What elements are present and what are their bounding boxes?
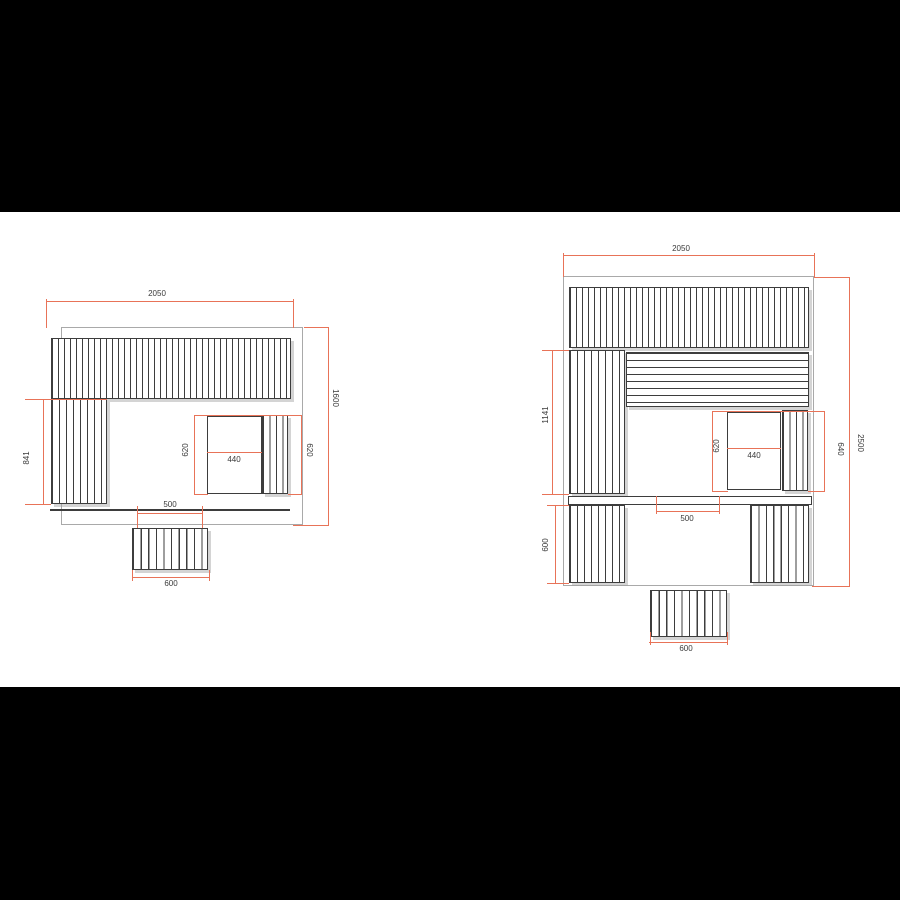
- left-dim-step-inner-tick-right: [202, 506, 203, 528]
- right-lounger-bench: [626, 352, 809, 407]
- right-dim-step-tick-left: [650, 632, 651, 645]
- right-dim-step-label: 600: [679, 645, 692, 653]
- left-dim-bench-ext-top: [25, 399, 107, 400]
- right-dim-heater-width-line: [727, 448, 781, 449]
- right-dim-step-inner-label: 500: [680, 515, 693, 523]
- right-dim-step-inner-line: [656, 511, 720, 512]
- right-lower-left-bench: [569, 505, 625, 583]
- left-dim-heater-left-label: 620: [182, 443, 190, 456]
- left-dim-heater-left-line: [194, 415, 195, 495]
- right-dim-height-ext-bottom: [812, 586, 850, 587]
- left-step-bench: [132, 528, 208, 570]
- left-platform-edge: [50, 509, 290, 511]
- right-dim-bench-line: [552, 350, 553, 494]
- right-step-bench: [650, 590, 727, 637]
- right-dim-bench-ext-top: [542, 350, 569, 351]
- left-dim-bench-label: 841: [23, 451, 31, 464]
- left-dim-step-tick-left: [132, 570, 133, 581]
- left-dim-step-inner-line: [137, 513, 202, 514]
- left-dim-width-label: 2050: [148, 290, 166, 298]
- left-dim-heater-right-label: 620: [305, 443, 313, 456]
- left-dim-heater-ext-bottom-b: [288, 494, 302, 495]
- left-dim-width-line: [46, 301, 293, 302]
- right-dim-heater-ext-top: [712, 411, 824, 412]
- right-dim-lower-bench-ext-top: [547, 505, 569, 506]
- right-dim-heater-left-label: 620: [713, 439, 721, 452]
- letterbox-bottom-bar: [0, 687, 900, 900]
- left-dim-step-tick-right: [209, 570, 210, 581]
- right-dim-width-label: 2050: [672, 245, 690, 253]
- left-dim-height-line: [328, 327, 329, 525]
- right-dim-step-tick-right: [727, 632, 728, 645]
- right-dim-height-line: [849, 277, 850, 586]
- left-dim-heater-ext-top: [194, 415, 302, 416]
- left-dim-width-ext-left: [46, 299, 47, 328]
- left-dim-heater-width-line: [207, 452, 262, 453]
- left-dim-bench-ext-bottom: [25, 504, 51, 505]
- right-lower-right-bench: [750, 505, 809, 583]
- right-top-bench: [569, 287, 809, 348]
- right-dim-width-line: [563, 255, 814, 256]
- left-dim-height-ext-top: [304, 327, 329, 328]
- left-side-bench: [51, 399, 107, 504]
- right-platform-board: [568, 496, 812, 505]
- left-dim-heater-ext-bottom-a: [194, 494, 208, 495]
- left-heater-side-bench: [262, 415, 288, 494]
- right-dim-bench-ext-bottom: [542, 494, 569, 495]
- right-dim-lower-bench-label: 600: [542, 538, 550, 551]
- right-dim-heater-width-label: 440: [747, 452, 760, 460]
- letterbox-top-bar: [0, 0, 900, 212]
- left-dim-step-label: 600: [164, 580, 177, 588]
- right-dim-side-bench-line: [824, 411, 825, 491]
- left-dim-heater-right-line: [301, 415, 302, 495]
- left-dim-width-ext-right: [293, 299, 294, 328]
- left-dim-step-inner-tick-left: [137, 506, 138, 528]
- right-dim-bench-label: 1141: [542, 406, 550, 423]
- right-dim-side-bench-label: 640: [836, 442, 844, 455]
- left-dim-bench-line: [43, 399, 44, 504]
- right-side-bench: [569, 350, 625, 494]
- right-dim-height-ext-top: [814, 277, 850, 278]
- left-dim-step-line: [132, 577, 210, 578]
- left-dim-step-inner-label: 500: [163, 501, 176, 509]
- right-dim-step-line: [649, 642, 728, 643]
- right-dim-step-inner-tick-left: [656, 496, 657, 514]
- left-dim-heater-width-label: 440: [227, 456, 240, 464]
- right-dim-lower-bench-ext-bottom: [547, 583, 569, 584]
- right-heater-side-bench: [782, 410, 808, 491]
- left-dim-height-ext-bottom: [293, 525, 329, 526]
- right-dim-heater-ext-bottom-a: [712, 491, 728, 492]
- right-dim-width-ext-left: [563, 253, 564, 277]
- right-dim-height-label: 2500: [856, 434, 864, 452]
- left-top-bench: [51, 338, 291, 399]
- right-dim-heater-ext-bottom-b: [808, 491, 825, 492]
- right-dim-step-inner-tick-right: [719, 496, 720, 514]
- right-dim-lower-bench-line: [555, 505, 556, 583]
- right-dim-width-ext-right: [814, 253, 815, 277]
- left-dim-height-label: 1600: [331, 389, 339, 407]
- screenshot-root: 2050 1600 841 620 620 440 500: [0, 0, 900, 900]
